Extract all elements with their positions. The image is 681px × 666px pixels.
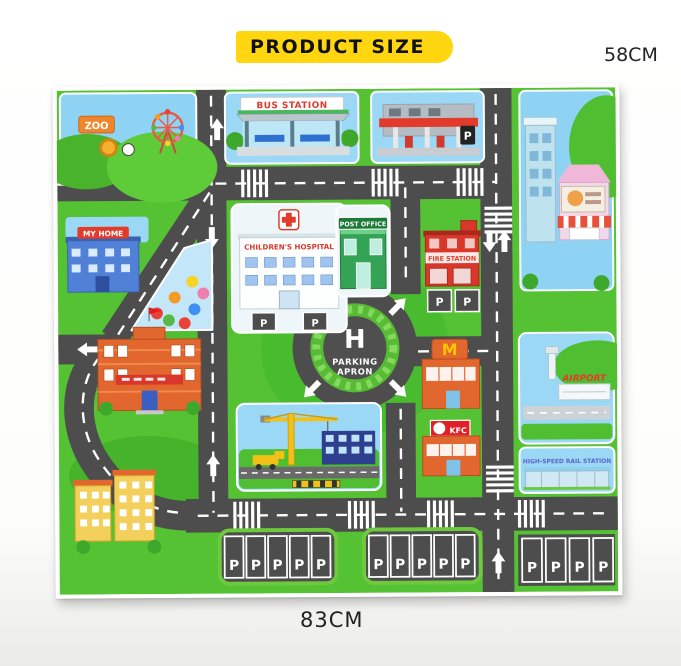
height-dimension-label: 58CM — [604, 44, 658, 66]
parking-letter: P — [551, 560, 561, 576]
post-office-block: POST OFFICE — [336, 205, 390, 296]
fire-station-label: FIRE STATION — [428, 256, 476, 263]
bench — [300, 135, 330, 142]
bus-station-block: BUS STATION — [225, 92, 359, 164]
parking-letter: P — [373, 557, 383, 573]
balloon — [179, 317, 191, 329]
hospital-label: CHILDREN'S HOSPITAL — [244, 242, 334, 252]
parking-apron-label-1: PARKING — [332, 356, 377, 366]
zebra-icon — [122, 144, 134, 156]
parking-letter: P — [417, 557, 427, 573]
parking-letter: P — [272, 558, 282, 574]
product-size-badge: PRODUCT SIZE — [236, 31, 453, 63]
product-photo: PRODUCT SIZE 58CM 83CM — [0, 0, 681, 666]
parking-lot-center: P P P P P — [364, 529, 481, 583]
width-dimension-label: 83CM — [300, 608, 364, 632]
balloon — [163, 314, 175, 326]
parking-letter: P — [598, 560, 608, 576]
barrier-icon — [292, 480, 339, 487]
parking-letter: P — [312, 318, 319, 329]
parking-letter: P — [527, 560, 537, 576]
parking-letter: P — [436, 296, 444, 309]
parking-apron-label-2: APRON — [337, 366, 373, 376]
rail-station-block: HIGH-SPEED RAIL STATION — [519, 447, 614, 493]
shop-awning — [558, 216, 611, 228]
red-cross-icon — [279, 210, 299, 230]
kfc-label: KFC — [449, 426, 467, 435]
construction-site-block — [237, 403, 382, 491]
zoo-sign: ZOO — [79, 116, 115, 133]
colonel-face-icon — [433, 422, 445, 434]
gas-parking-sign: P — [460, 126, 475, 145]
city-map-illustration: H PARKING APRON — [56, 87, 618, 594]
parking-letter: P — [460, 556, 470, 572]
rail-station-building — [526, 471, 609, 489]
zoo-park-block: ZOO — [56, 93, 217, 204]
parking-letter: P — [294, 557, 304, 573]
helipad-letter: H — [344, 325, 366, 355]
parking-letter: P — [395, 557, 405, 573]
play-mat: H PARKING APRON — [52, 83, 622, 598]
parking-lot-right: P P P P — [518, 534, 615, 586]
airport-block: AIRPORT — [519, 332, 619, 443]
balloon — [197, 287, 209, 299]
balloon — [169, 292, 181, 304]
parking-letter: P — [574, 560, 584, 576]
parking-letter: P — [463, 296, 471, 309]
fuel-pump-icon — [405, 136, 413, 148]
product-size-label: PRODUCT SIZE — [250, 36, 425, 58]
airport-label: AIRPORT — [561, 374, 607, 384]
my-home-block: MY HOME — [65, 217, 148, 293]
childrens-hospital-block: CHILDREN'S HOSPITAL P P — [231, 204, 346, 333]
parking-letter: P — [439, 557, 449, 573]
parking-letter: P — [464, 130, 472, 143]
fuel-pump-icon — [437, 136, 445, 148]
gas-station-block: P — [371, 91, 484, 163]
post-office-label: POST OFFICE — [340, 221, 386, 228]
bench — [255, 135, 285, 142]
city-buildings-block — [519, 90, 618, 291]
bus-station-label: BUS STATION — [256, 101, 327, 111]
balloon — [186, 276, 198, 288]
balloon — [189, 303, 201, 315]
rail-station-label: HIGH-SPEED RAIL STATION — [523, 459, 611, 466]
my-home-label: MY HOME — [83, 229, 123, 238]
parking-letter: P — [316, 557, 326, 573]
parking-lot-left: P P P P P — [220, 530, 337, 584]
kfc-sign: KFC — [430, 420, 470, 436]
parking-letter: P — [229, 558, 239, 574]
parking-letter: P — [251, 558, 261, 574]
lion-icon — [101, 140, 117, 156]
parking-letter: P — [260, 319, 267, 330]
mcdonalds-arches-icon: M — [442, 340, 458, 359]
zoo-label: ZOO — [85, 121, 109, 132]
